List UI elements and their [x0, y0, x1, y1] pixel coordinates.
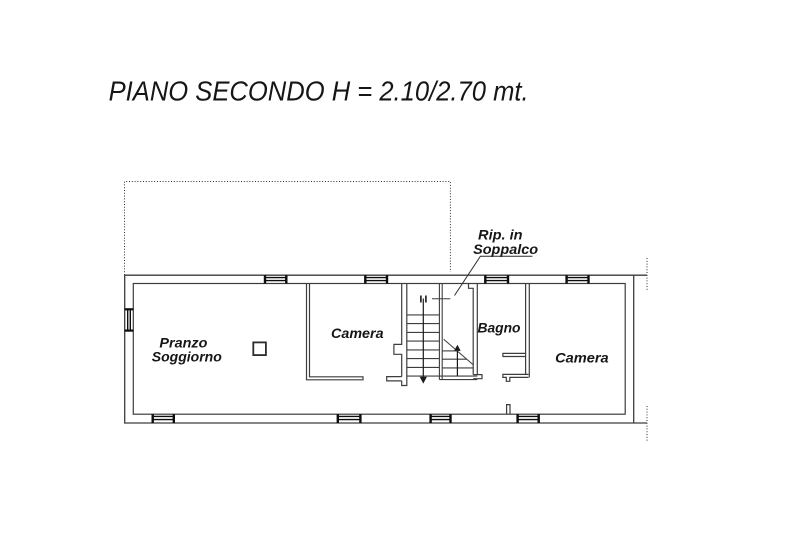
- svg-text:Bagno: Bagno: [478, 319, 521, 335]
- svg-text:Camera: Camera: [555, 349, 609, 365]
- svg-text:Soggiorno: Soggiorno: [152, 349, 222, 365]
- svg-text:PIANO SECONDO H = 2.10/2.70 mt: PIANO SECONDO H = 2.10/2.70 mt.: [109, 76, 529, 107]
- svg-text:Camera: Camera: [331, 325, 384, 341]
- svg-text:Soppalco: Soppalco: [473, 241, 538, 257]
- svg-text:Rip. in: Rip. in: [478, 227, 523, 243]
